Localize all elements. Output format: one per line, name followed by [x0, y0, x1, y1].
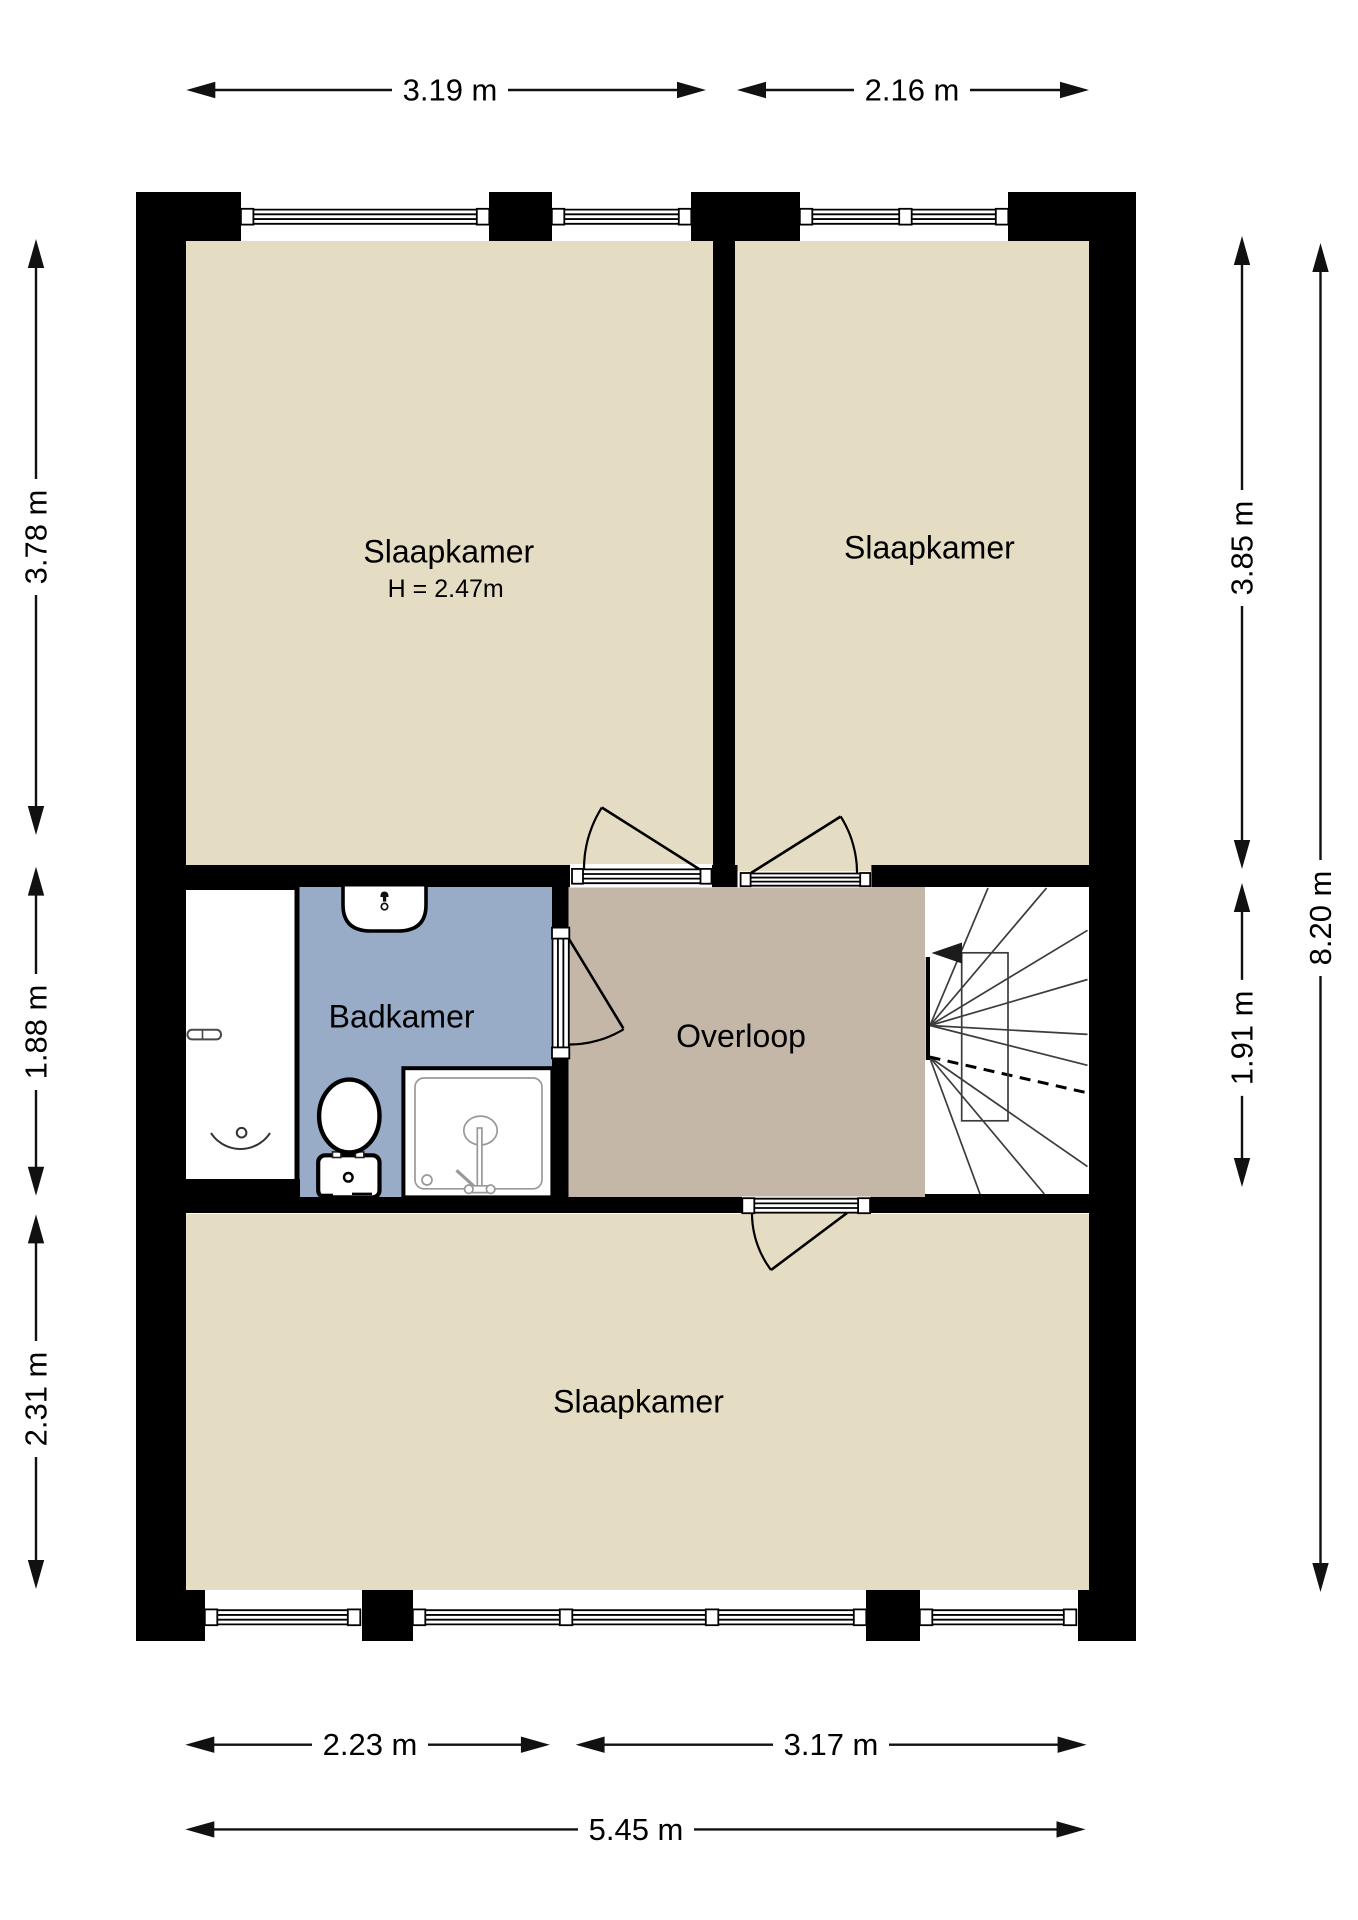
svg-text:3.78 m: 3.78 m — [19, 490, 54, 585]
svg-text:H = 2.47m: H = 2.47m — [388, 575, 504, 603]
svg-text:Slaapkamer: Slaapkamer — [844, 530, 1015, 566]
svg-text:1.88 m: 1.88 m — [19, 985, 54, 1080]
svg-text:8.20 m: 8.20 m — [1303, 871, 1338, 966]
svg-text:Slaapkamer: Slaapkamer — [553, 1384, 724, 1420]
svg-text:3.17 m: 3.17 m — [784, 1727, 879, 1762]
svg-text:3.85 m: 3.85 m — [1225, 501, 1260, 596]
svg-text:3.19 m: 3.19 m — [403, 73, 498, 108]
svg-text:Badkamer: Badkamer — [329, 999, 475, 1035]
svg-text:Overloop: Overloop — [676, 1018, 806, 1054]
svg-text:5.45 m: 5.45 m — [589, 1812, 684, 1847]
svg-text:Slaapkamer: Slaapkamer — [363, 533, 534, 569]
svg-text:2.31 m: 2.31 m — [19, 1352, 54, 1447]
svg-text:2.23 m: 2.23 m — [323, 1727, 418, 1762]
svg-text:2.16 m: 2.16 m — [865, 73, 960, 108]
svg-text:1.91 m: 1.91 m — [1225, 991, 1260, 1086]
